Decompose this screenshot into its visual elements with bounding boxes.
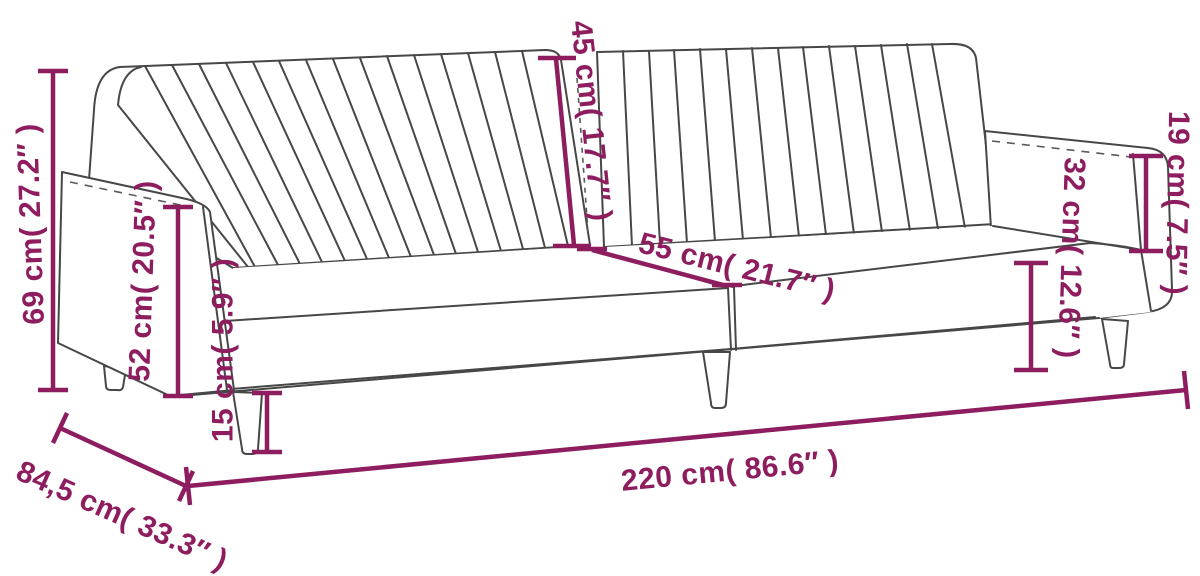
dimension-label-32cm: 32 cm( 12.6″ ) bbox=[1051, 157, 1091, 360]
right-backrest bbox=[597, 44, 995, 247]
dimension-overall-width: 220 cm( 86.6″ ) bbox=[186, 371, 1188, 505]
product-dimension-diagram: 69 cm( 27.2″ ) 52 cm( 20.5″ ) 15 cm( 5.9… bbox=[0, 0, 1200, 576]
sofa-line-drawing: 69 cm( 27.2″ ) 52 cm( 20.5″ ) 15 cm( 5.9… bbox=[0, 0, 1200, 576]
front-middle-leg bbox=[703, 352, 730, 408]
dimension-label-19cm: 19 cm( 7.5″ ) bbox=[1159, 111, 1195, 296]
dimension-label-84-5cm: 84,5 cm( 33.3″ ) bbox=[11, 455, 232, 576]
dimension-label-220cm: 220 cm( 86.6″ ) bbox=[620, 444, 841, 498]
right-leg bbox=[1102, 319, 1128, 368]
dimension-label-69cm: 69 cm( 27.2″ ) bbox=[11, 123, 51, 326]
dimension-label-52cm: 52 cm( 20.5″ ) bbox=[123, 180, 163, 383]
dimension-overall-depth: 84,5 cm( 33.3″ ) bbox=[11, 413, 232, 576]
dimension-label-15cm: 15 cm( 5.9″ ) bbox=[207, 258, 240, 442]
